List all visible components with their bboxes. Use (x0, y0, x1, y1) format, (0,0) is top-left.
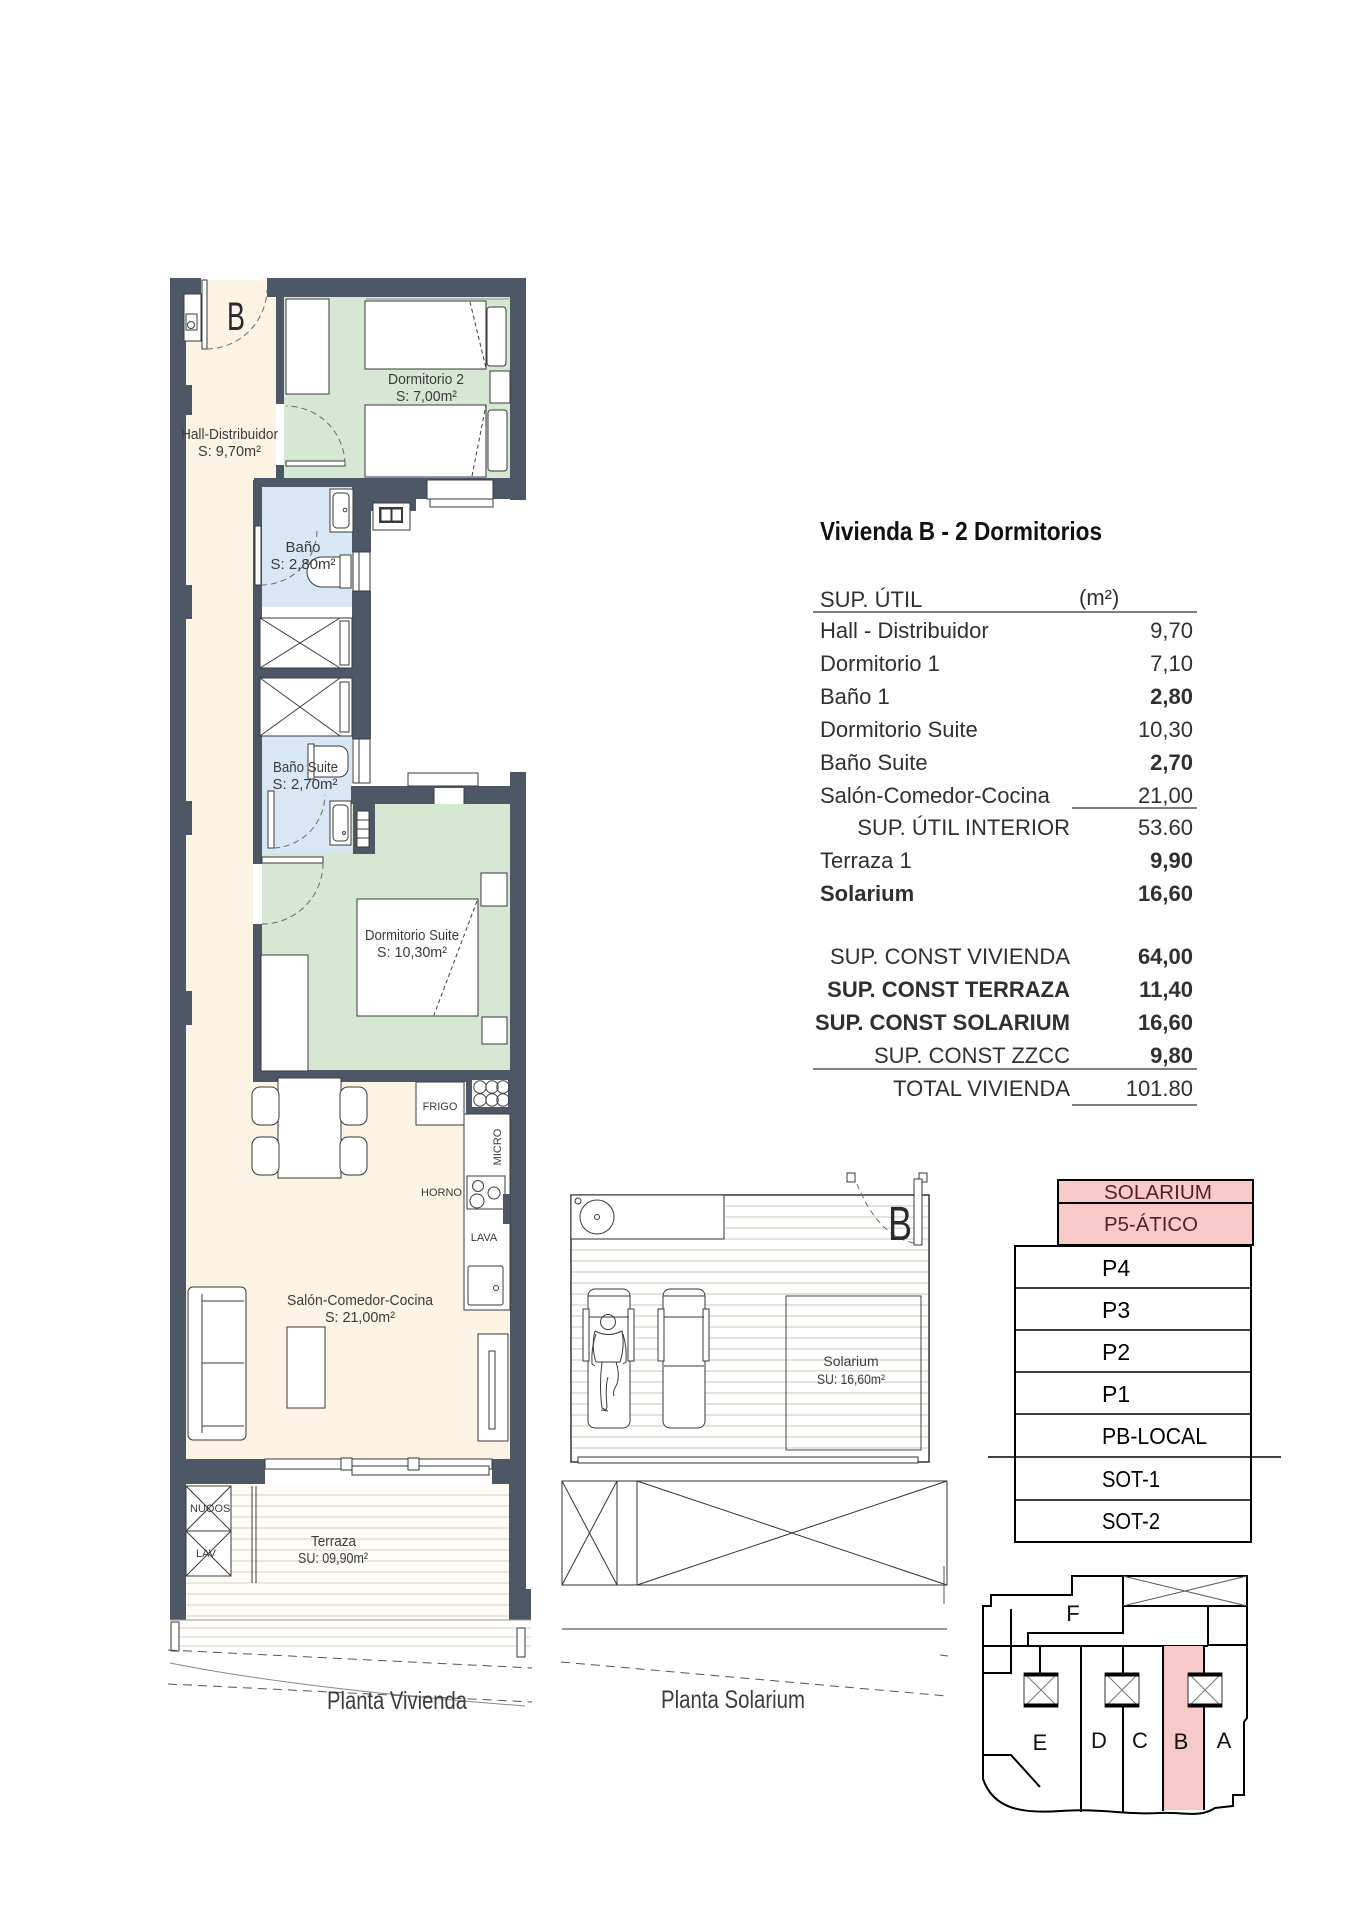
svg-text:SUP. ÚTIL INTERIOR: SUP. ÚTIL INTERIOR (857, 815, 1070, 840)
svg-text:(m²): (m²) (1079, 585, 1119, 610)
svg-text:P1: P1 (1102, 1381, 1130, 1407)
svg-text:11,40: 11,40 (1139, 977, 1193, 1002)
svg-text:MICRO: MICRO (492, 1128, 504, 1165)
svg-text:16,60: 16,60 (1138, 881, 1193, 906)
svg-text:HORNO: HORNO (421, 1187, 462, 1199)
svg-text:B: B (1174, 1729, 1189, 1754)
svg-text:TOTAL VIVIENDA: TOTAL VIVIENDA (893, 1076, 1070, 1101)
svg-text:Hall - Distribuidor: Hall - Distribuidor (820, 618, 989, 643)
svg-text:53.60: 53.60 (1138, 815, 1193, 840)
svg-text:S: 2,70m²: S: 2,70m² (272, 776, 337, 793)
svg-text:2,80: 2,80 (1150, 684, 1193, 709)
svg-text:C: C (1132, 1728, 1148, 1753)
svg-text:Planta Solarium: Planta Solarium (661, 1686, 805, 1714)
svg-text:Planta Vivienda: Planta Vivienda (327, 1687, 467, 1715)
svg-text:S: 7,00m²: S: 7,00m² (396, 388, 457, 405)
svg-text:P4: P4 (1102, 1255, 1130, 1281)
svg-text:F: F (1066, 1601, 1079, 1626)
svg-text:101.80: 101.80 (1126, 1076, 1193, 1101)
svg-text:SUP. CONST TERRAZA: SUP. CONST TERRAZA (827, 977, 1070, 1002)
svg-text:A: A (1217, 1728, 1232, 1753)
svg-text:Terraza 1: Terraza 1 (820, 848, 912, 873)
svg-text:B: B (227, 295, 245, 339)
svg-text:7,10: 7,10 (1150, 651, 1193, 676)
svg-text:16,60: 16,60 (1138, 1010, 1193, 1035)
svg-text:P5-ÁTICO: P5-ÁTICO (1104, 1213, 1198, 1236)
svg-text:SOT-2: SOT-2 (1102, 1508, 1160, 1534)
svg-text:PB-LOCAL: PB-LOCAL (1102, 1423, 1207, 1449)
svg-text:Baño: Baño (285, 539, 320, 556)
svg-text:Terraza: Terraza (311, 1533, 357, 1550)
svg-text:SUP. ÚTIL: SUP. ÚTIL (820, 587, 922, 612)
svg-text:Salón-Comedor-Cocina: Salón-Comedor-Cocina (820, 783, 1051, 808)
svg-text:B: B (888, 1198, 912, 1251)
svg-text:SU: 09,90m²: SU: 09,90m² (298, 1550, 368, 1567)
svg-text:NUOOS: NUOOS (190, 1503, 230, 1515)
svg-text:P3: P3 (1102, 1297, 1130, 1323)
svg-text:E: E (1033, 1730, 1048, 1755)
svg-text:Solarium: Solarium (823, 1353, 878, 1369)
svg-text:10,30: 10,30 (1138, 717, 1193, 742)
svg-text:Dormitorio Suite: Dormitorio Suite (820, 717, 978, 742)
svg-text:9,90: 9,90 (1150, 848, 1193, 873)
svg-text:SUP. CONST SOLARIUM: SUP. CONST SOLARIUM (815, 1010, 1070, 1035)
svg-text:P2: P2 (1102, 1339, 1130, 1365)
svg-text:64,00: 64,00 (1138, 944, 1193, 969)
svg-text:9,80: 9,80 (1150, 1043, 1193, 1068)
svg-text:Baño 1: Baño 1 (820, 684, 890, 709)
svg-text:S: 21,00m²: S: 21,00m² (325, 1309, 395, 1326)
svg-text:Vivienda B - 2 Dormitorios: Vivienda B - 2 Dormitorios (820, 516, 1102, 546)
svg-text:SUP. CONST VIVIENDA: SUP. CONST VIVIENDA (830, 944, 1070, 969)
svg-text:SOT-1: SOT-1 (1102, 1466, 1160, 1492)
svg-text:Dormitorio 1: Dormitorio 1 (820, 651, 940, 676)
svg-text:SU: 16,60m²: SU: 16,60m² (817, 1371, 885, 1387)
svg-text:LAVA: LAVA (471, 1232, 498, 1244)
svg-text:Dormitorio 2: Dormitorio 2 (388, 371, 464, 388)
svg-text:LAV: LAV (196, 1548, 217, 1560)
svg-text:FRIGO: FRIGO (423, 1101, 458, 1113)
svg-text:Salón-Comedor-Cocina: Salón-Comedor-Cocina (287, 1292, 434, 1309)
svg-text:Baño Suite: Baño Suite (273, 759, 338, 776)
svg-text:S: 2,80m²: S: 2,80m² (270, 556, 335, 573)
svg-text:Dormitorio Suite: Dormitorio Suite (365, 927, 459, 944)
svg-text:S: 9,70m²: S: 9,70m² (198, 443, 261, 460)
svg-text:S: 10,30m²: S: 10,30m² (377, 944, 447, 961)
svg-text:D: D (1091, 1728, 1107, 1753)
svg-text:2,70: 2,70 (1150, 750, 1193, 775)
svg-text:9,70: 9,70 (1150, 618, 1193, 643)
svg-text:Solarium: Solarium (820, 881, 914, 906)
svg-text:SOLARIUM: SOLARIUM (1104, 1182, 1212, 1204)
svg-text:Hall-Distribuidor: Hall-Distribuidor (181, 426, 278, 443)
svg-text:21,00: 21,00 (1138, 783, 1193, 808)
svg-text:Baño Suite: Baño Suite (820, 750, 928, 775)
svg-text:SUP. CONST ZZCC: SUP. CONST ZZCC (874, 1043, 1070, 1068)
